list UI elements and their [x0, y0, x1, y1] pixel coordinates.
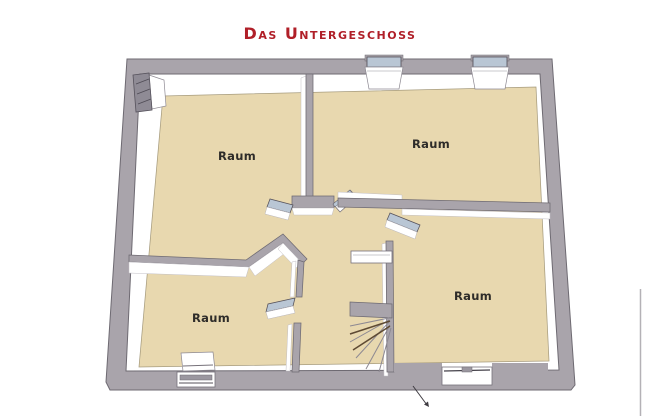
floor-plan-drawing: Raum Raum Raum Raum	[0, 0, 650, 416]
window-bottom-1	[177, 352, 215, 387]
door-leaf-stair	[351, 251, 392, 263]
room-label-bottom-right: Raum	[454, 289, 492, 303]
document-page: Das Untergeschoss	[0, 0, 650, 416]
window-top-1	[365, 55, 403, 89]
page-title: Das Untergeschoss	[0, 24, 650, 43]
room-label-bottom-left: Raum	[192, 311, 230, 325]
floor-surface	[139, 87, 549, 367]
window-top-2	[471, 55, 509, 89]
window-left-wall	[133, 73, 166, 112]
room-label-top-left: Raum	[218, 149, 256, 163]
room-label-top-right: Raum	[412, 137, 450, 151]
